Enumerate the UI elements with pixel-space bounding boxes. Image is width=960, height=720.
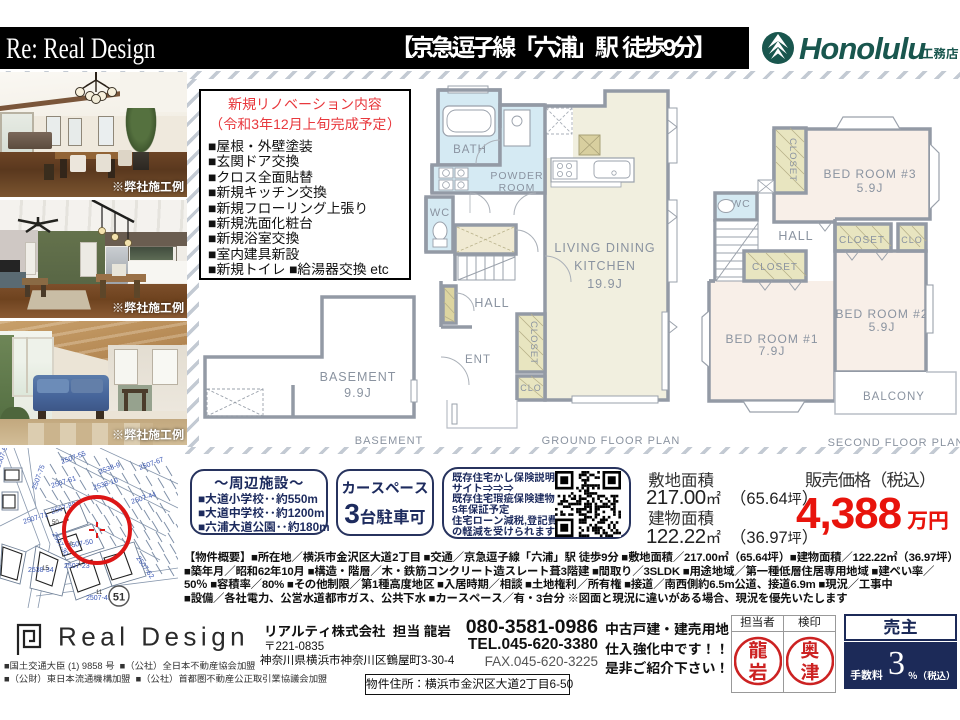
svg-text:WC: WC bbox=[430, 207, 450, 219]
svg-text:龍: 龍 bbox=[748, 641, 768, 662]
svg-text:KITCHEN: KITCHEN bbox=[574, 259, 636, 273]
svg-text:50: 50 bbox=[52, 520, 59, 526]
svg-text:2507-23: 2507-23 bbox=[64, 563, 90, 570]
svg-text:CLO: CLO bbox=[901, 235, 923, 245]
svg-text:BASEMENT: BASEMENT bbox=[355, 435, 424, 447]
svg-text:BASEMENT: BASEMENT bbox=[320, 370, 397, 384]
svg-text:2538-34: 2538-34 bbox=[28, 567, 54, 574]
svg-text:CLOSET: CLOSET bbox=[839, 235, 885, 246]
svg-text:15: 15 bbox=[42, 566, 49, 572]
svg-text:奥: 奥 bbox=[800, 640, 819, 662]
svg-text:11: 11 bbox=[96, 590, 103, 596]
svg-text:WC: WC bbox=[731, 198, 751, 210]
svg-text:BATH: BATH bbox=[453, 144, 487, 156]
svg-text:7.9J: 7.9J bbox=[759, 344, 786, 358]
svg-text:2507-45: 2507-45 bbox=[86, 595, 112, 602]
svg-text:5.9J: 5.9J bbox=[857, 181, 884, 195]
svg-text:9.9J: 9.9J bbox=[344, 386, 372, 400]
svg-text:ENT: ENT bbox=[465, 354, 491, 366]
svg-text:ROOM: ROOM bbox=[499, 182, 536, 194]
svg-text:CLOSET: CLOSET bbox=[787, 138, 798, 182]
svg-text:5.9J: 5.9J bbox=[869, 320, 896, 334]
svg-text:BALCONY: BALCONY bbox=[863, 391, 925, 403]
svg-text:CLOSET: CLOSET bbox=[528, 321, 539, 365]
svg-text:19.9J: 19.9J bbox=[587, 277, 623, 291]
svg-text:BED ROOM #3: BED ROOM #3 bbox=[823, 167, 916, 181]
svg-text:岩: 岩 bbox=[748, 663, 767, 684]
svg-text:BED ROOM #2: BED ROOM #2 bbox=[835, 307, 928, 321]
svg-text:Honolulu: Honolulu bbox=[799, 31, 926, 66]
svg-text:51: 51 bbox=[113, 592, 125, 604]
svg-text:工務店: 工務店 bbox=[921, 47, 959, 61]
svg-text:GROUND FLOOR PLAN: GROUND FLOOR PLAN bbox=[542, 435, 681, 447]
svg-text:LIVING DINING: LIVING DINING bbox=[554, 241, 655, 255]
svg-text:POWDER: POWDER bbox=[490, 170, 543, 182]
svg-text:CLO: CLO bbox=[520, 383, 542, 393]
svg-text:津: 津 bbox=[800, 663, 819, 684]
svg-text:SECOND FLOOR PLAN: SECOND FLOOR PLAN bbox=[828, 437, 960, 449]
svg-text:CLOSET: CLOSET bbox=[752, 262, 798, 273]
svg-text:HALL: HALL bbox=[778, 229, 813, 243]
svg-text:HALL: HALL bbox=[474, 296, 509, 310]
